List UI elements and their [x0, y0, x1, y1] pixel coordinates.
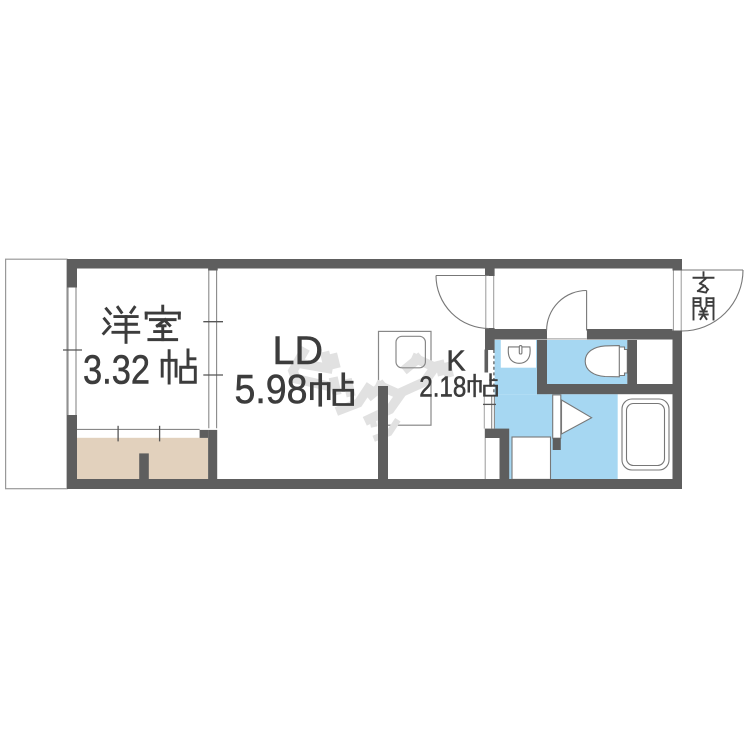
svg-text:3.32: 3.32: [83, 347, 150, 393]
svg-text:2.18: 2.18: [419, 372, 466, 404]
svg-text:5.98: 5.98: [235, 366, 308, 412]
